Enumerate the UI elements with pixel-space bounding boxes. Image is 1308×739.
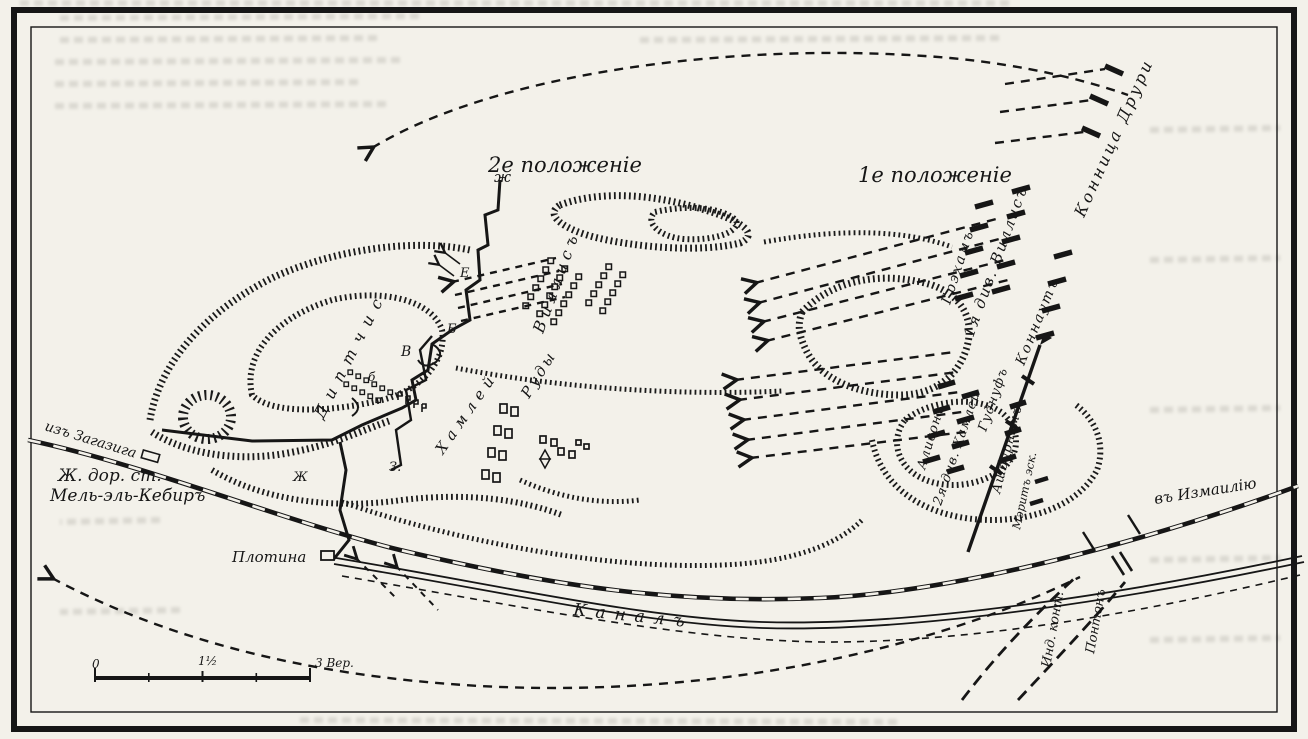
scale-end-label: 3 Вер.: [315, 656, 354, 670]
rail-crossing-tick: [1128, 515, 1140, 534]
label-first-position: 1е положеніе: [858, 163, 1012, 187]
map-svg: 2е положеніе 1е положеніе Конница Друри …: [0, 0, 1308, 739]
star-symbol: [540, 450, 550, 468]
label-tel-el-kebir: Мель-эль-Кебиръ: [49, 486, 205, 506]
pontoon-symbol: [1112, 552, 1132, 575]
marker-zh: ж: [494, 168, 511, 186]
railway: [28, 440, 1298, 599]
label-rudy: Руды: [517, 347, 561, 402]
label-dam: Плотина: [231, 548, 306, 566]
marker-b2: б: [368, 370, 376, 384]
station-symbol: [141, 450, 160, 462]
scanned-map-page: 2е положеніе 1е положеніе Конница Друри …: [0, 0, 1308, 739]
label-hamley-center: Хамлей: [431, 368, 501, 458]
label-to-ismailia: въ Измаилію: [1153, 474, 1258, 508]
letter-markers: ж Е Б В б З. Ж: [292, 168, 511, 485]
assault-arrows: [438, 252, 460, 276]
label-canal: Каналъ: [571, 600, 694, 633]
label-pontoon: Понтонъ: [1083, 588, 1109, 656]
marker-v: В: [400, 344, 411, 360]
scale-middle-label: 1½: [198, 654, 217, 668]
dam-symbol: [321, 551, 334, 560]
label-merritt-squadron: Мэритъ эск.: [1009, 451, 1039, 532]
marker-b: Б: [446, 322, 457, 337]
map-labels: 2е положеніе 1е положеніе Конница Друри …: [43, 55, 1258, 669]
scale-bar: 0 1½ 3 Вер.: [92, 654, 354, 682]
marker-e: Е: [459, 266, 470, 281]
infantry-columns-hamley: [482, 404, 589, 482]
rail-crossing-tick: [1083, 532, 1095, 551]
marker-z: З.: [389, 460, 401, 475]
marker-zh2: Ж: [292, 470, 308, 485]
label-willis-division: 1я див. Виллисъ: [960, 183, 1031, 339]
label-rail-station: Ж. дор. ст.: [57, 466, 162, 486]
scale-start-label: 0: [92, 657, 100, 671]
